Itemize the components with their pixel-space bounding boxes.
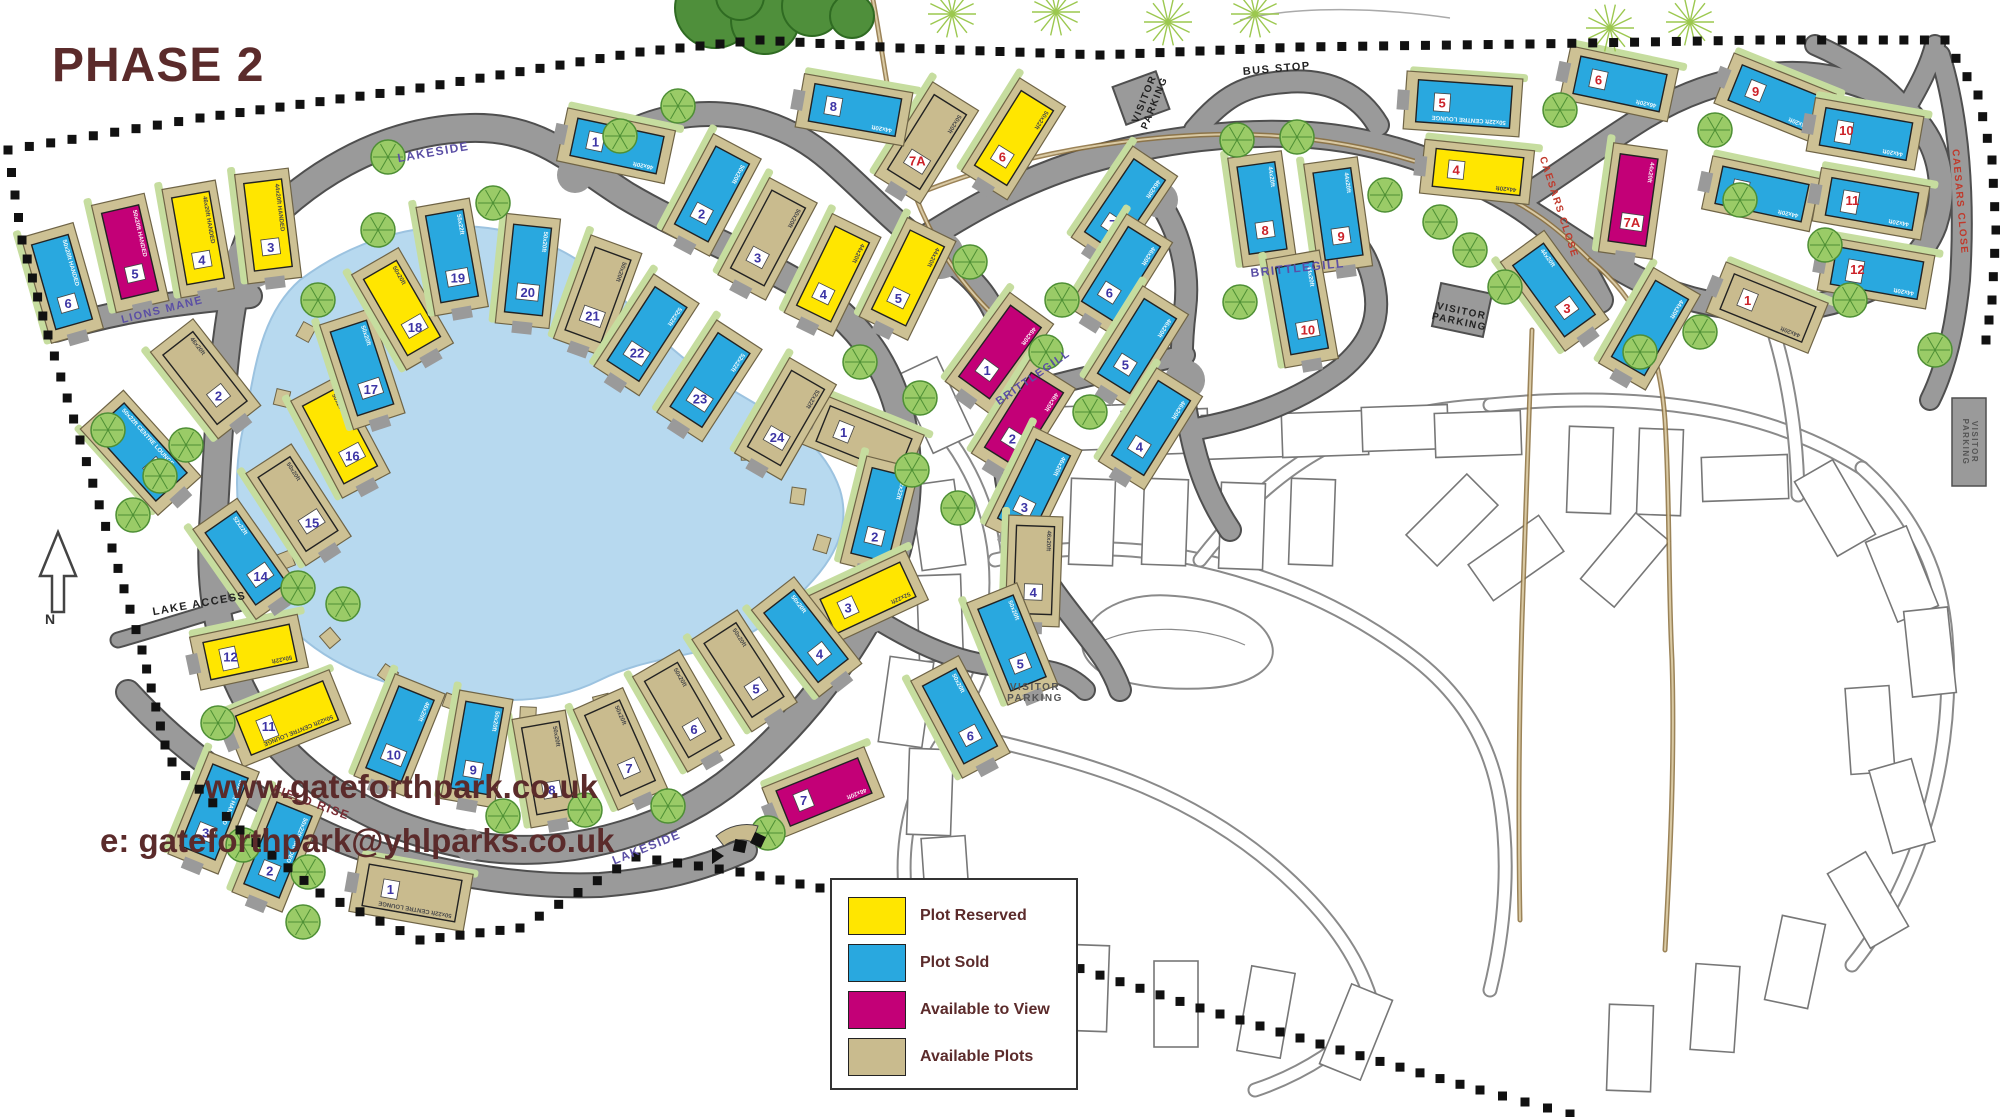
boundary-dot xyxy=(1776,36,1785,45)
boundary-dot xyxy=(28,274,37,283)
boundary-dot xyxy=(1651,37,1660,46)
plot-number: 10 xyxy=(387,747,401,762)
boundary-dot xyxy=(916,44,925,53)
boundary-dot xyxy=(816,39,825,48)
boundary-dot xyxy=(1276,1028,1285,1037)
tree-icon xyxy=(1808,228,1842,262)
north-arrow: N xyxy=(40,532,76,627)
plot-number: 16 xyxy=(345,448,359,463)
boundary-dot xyxy=(456,931,465,940)
boundary-dot xyxy=(316,889,325,898)
tree-canopy xyxy=(830,0,874,38)
boundary-dot xyxy=(1336,1046,1345,1055)
boundary-dot xyxy=(1879,36,1888,45)
boundary-dot xyxy=(516,67,525,76)
boundary-dot xyxy=(196,114,205,123)
tree-icon xyxy=(201,706,235,740)
boundary-dot xyxy=(181,771,190,780)
boundary-dot xyxy=(14,213,23,222)
plot-number: 6 xyxy=(1106,286,1113,301)
boundary-dot xyxy=(316,97,325,106)
plot-number: 23 xyxy=(693,391,707,406)
boundary-dot xyxy=(138,646,147,655)
boundary-dot xyxy=(33,293,42,302)
plot-number: 1 xyxy=(840,425,847,440)
legend-item-available: Available Plots xyxy=(848,1033,1076,1080)
boundary-dot xyxy=(50,352,59,361)
boundary-dot xyxy=(1416,1068,1425,1077)
boundary-dot xyxy=(896,44,905,53)
boundary-dot xyxy=(108,544,117,553)
boundary-dot xyxy=(376,89,385,98)
boundary-dot xyxy=(132,124,141,133)
boundary-dot xyxy=(1236,45,1245,54)
plot-number: 10 xyxy=(1301,323,1315,338)
plot-number: 21 xyxy=(585,309,599,324)
boundary-dot xyxy=(1400,41,1409,50)
boundary-dot xyxy=(736,38,745,47)
boundary-dot xyxy=(1920,36,1929,45)
plot-number: 11 xyxy=(1845,193,1859,208)
plot-number: 6 xyxy=(1595,72,1602,87)
boundary-dot xyxy=(1316,1040,1325,1049)
legend-swatch-sold xyxy=(848,944,906,982)
boundary-dot xyxy=(38,312,47,321)
future-plot-outline xyxy=(1690,964,1740,1053)
boundary-dot xyxy=(7,168,16,177)
plot-number: 4 xyxy=(1136,440,1144,455)
site-plan-page: 50x22ft CENTRE LOUNGE146x20ft244x20ft HA… xyxy=(0,0,2000,1117)
boundary-dot xyxy=(574,888,583,897)
plot-number: 7 xyxy=(625,761,632,776)
boundary-dot xyxy=(1476,1086,1485,1095)
boundary-dot xyxy=(76,436,85,445)
boundary-dot xyxy=(1296,43,1305,52)
boundary-dot xyxy=(44,331,53,340)
boundary-dot xyxy=(1136,984,1145,993)
boundary-dot xyxy=(4,146,13,155)
boundary-dot xyxy=(168,758,177,767)
boundary-dot xyxy=(1978,112,1987,121)
plot-number: 5 xyxy=(1438,95,1445,110)
boundary-dot xyxy=(336,898,345,907)
boundary-dot xyxy=(756,872,765,881)
boundary-dot xyxy=(1858,36,1867,45)
boundary-dot xyxy=(336,94,345,103)
boundary-dot xyxy=(496,70,505,79)
boundary-dot xyxy=(1756,36,1765,45)
tree-icon xyxy=(281,571,315,605)
tree-icon xyxy=(603,119,637,153)
boundary-dot xyxy=(1356,1051,1365,1060)
plot-number: 1 xyxy=(983,363,990,378)
boundary-dot xyxy=(114,564,123,573)
boundary-dot xyxy=(1546,39,1555,48)
road-label-visitor-parking: VISITORPARKING xyxy=(1007,682,1063,704)
boundary-dot xyxy=(593,876,602,885)
boundary-dot xyxy=(796,880,805,889)
boundary-dot xyxy=(1588,38,1597,47)
plot-number: 14 xyxy=(253,569,268,584)
tree-icon xyxy=(1280,120,1314,154)
future-plot-outline xyxy=(1468,515,1564,600)
plot-number: 19 xyxy=(451,271,465,286)
boundary-dot xyxy=(1526,40,1535,49)
boundary-dot xyxy=(156,722,165,731)
boundary-dot xyxy=(1989,272,1998,281)
boundary-dot xyxy=(1982,336,1991,345)
boundary-dot xyxy=(1136,49,1145,58)
boundary-dot xyxy=(195,785,204,794)
future-plot-outline xyxy=(1637,428,1684,515)
boundary-dot xyxy=(1096,971,1105,980)
road-label-visitor-parking: VISITORPARKING xyxy=(1961,419,1979,466)
boundary-dot xyxy=(1735,36,1744,45)
tree-icon xyxy=(953,245,987,279)
boundary-dot xyxy=(1256,1022,1265,1031)
boundary-dot xyxy=(101,522,110,531)
legend-label: Available Plots xyxy=(920,1048,1033,1066)
plot-number: 5 xyxy=(752,681,759,696)
future-plot-outline xyxy=(1567,426,1614,513)
boundary-dot xyxy=(1714,36,1723,45)
tree-icon xyxy=(1543,93,1577,127)
boundary-dot xyxy=(46,138,55,147)
boundary-dot xyxy=(656,46,665,55)
boundary-dot xyxy=(1056,49,1065,58)
boundary-dot xyxy=(147,684,156,693)
plot-number: 5 xyxy=(1017,656,1024,671)
legend-label: Available to View xyxy=(920,1001,1050,1019)
plot-number: 5 xyxy=(131,266,138,281)
boundary-dot xyxy=(1988,296,1997,305)
boundary-dot xyxy=(300,876,309,885)
plot-size-label: 46x20ft xyxy=(1045,530,1052,551)
boundary-dot xyxy=(174,117,183,126)
boundary-dot xyxy=(161,741,170,750)
boundary-dot xyxy=(1096,51,1105,60)
contact-email: e: gateforthpark@yhlparks.co.uk xyxy=(100,822,614,860)
tree-icon xyxy=(1368,178,1402,212)
tree-icon xyxy=(1045,283,1079,317)
boundary-dot xyxy=(376,917,385,926)
future-plot-outline xyxy=(1069,478,1116,565)
plot-number: 7 xyxy=(800,793,807,808)
tree-icon xyxy=(1698,113,1732,147)
boundary-dot xyxy=(556,61,565,70)
boundary-dot xyxy=(88,479,97,488)
boundary-dot xyxy=(1156,48,1165,57)
boundary-dot xyxy=(1379,41,1388,50)
plot-number: 12 xyxy=(1850,262,1864,277)
boundary-dot xyxy=(1316,42,1325,51)
boundary-dot xyxy=(1216,46,1225,55)
boundary-dot xyxy=(1693,37,1702,46)
boundary-dot xyxy=(1276,43,1285,52)
boundary-dot xyxy=(11,191,20,200)
boundary-dot xyxy=(596,54,605,63)
tree-icon xyxy=(143,459,177,493)
boundary-dot xyxy=(554,900,563,909)
boundary-dot xyxy=(1216,1010,1225,1019)
boundary-dot xyxy=(216,111,225,120)
boundary-dot xyxy=(1899,36,1908,45)
plot-number: 3 xyxy=(754,250,761,265)
boundary-dot xyxy=(1974,91,1983,100)
legend-label: Plot Sold xyxy=(920,954,989,972)
boundary-dot xyxy=(1609,38,1618,47)
boundary-dot xyxy=(356,907,365,916)
boundary-dot xyxy=(1436,1074,1445,1083)
boundary-dot xyxy=(1838,36,1847,45)
plot-driveway xyxy=(1396,89,1409,110)
tree-icon xyxy=(169,428,203,462)
plot-number: 2 xyxy=(871,529,878,544)
future-plot-outline xyxy=(1281,411,1368,458)
boundary-dot xyxy=(716,40,725,49)
legend-item-reserved: Plot Reserved xyxy=(848,892,1076,939)
boundary-dot xyxy=(996,47,1005,56)
boundary-dot xyxy=(856,41,865,50)
tree-icon xyxy=(1423,205,1457,239)
plot-number: 2 xyxy=(266,863,273,878)
plot-number: 4 xyxy=(816,646,824,661)
boundary-dot xyxy=(1963,72,1972,81)
plot-number: 17 xyxy=(364,382,378,397)
boundary-dot xyxy=(756,36,765,45)
tree-icon xyxy=(1453,233,1487,267)
boundary-dot xyxy=(63,394,72,403)
plot-number: 20 xyxy=(520,285,534,300)
boundary-dot xyxy=(496,926,505,935)
boundary-dot xyxy=(1236,1016,1245,1025)
future-plot-outline xyxy=(1607,1004,1654,1091)
plot-number: 24 xyxy=(770,430,785,445)
boundary-dot xyxy=(1990,202,1999,211)
boundary-dot xyxy=(1076,50,1085,59)
plot-number: 22 xyxy=(630,345,644,360)
boundary-dot xyxy=(18,236,27,245)
boundary-dot xyxy=(1797,36,1806,45)
tree-icon xyxy=(903,381,937,415)
tree-icon xyxy=(1223,285,1257,319)
plot-number: 8 xyxy=(830,99,837,114)
plot-number: 3 xyxy=(844,600,851,615)
boundary-dot xyxy=(476,74,485,83)
boundary-dot xyxy=(576,57,585,66)
boundary-dot xyxy=(1498,1092,1507,1101)
boundary-dot xyxy=(222,812,231,821)
legend-swatch-available xyxy=(848,1038,906,1076)
tree-icon xyxy=(843,345,877,379)
boundary-dot xyxy=(82,457,91,466)
boundary-dot xyxy=(120,584,129,593)
boundary-dot xyxy=(673,859,682,868)
plot-number: 3 xyxy=(1021,500,1028,515)
boundary-dot xyxy=(396,926,405,935)
tree-icon xyxy=(1220,123,1254,157)
boundary-dot xyxy=(396,86,405,95)
tree-icon xyxy=(895,453,929,487)
boundary-dot xyxy=(25,142,34,151)
plot-number: 3 xyxy=(267,240,274,255)
boundary-dot xyxy=(1941,36,1950,45)
plot-number: 5 xyxy=(1122,358,1129,373)
plot-number: 4 xyxy=(198,253,206,268)
future-plot-outline xyxy=(1406,474,1498,566)
plot-driveway xyxy=(264,275,285,289)
boundary-dot xyxy=(416,936,425,945)
sketch-line xyxy=(1240,10,1450,20)
boundary-dot xyxy=(1983,134,1992,143)
legend-item-sold: Plot Sold xyxy=(848,939,1076,986)
tree-icon xyxy=(941,491,975,525)
plot-number: 6 xyxy=(64,296,71,311)
boundary-dot xyxy=(516,924,525,933)
plot-number: 7A xyxy=(909,154,926,169)
plot-number: 2 xyxy=(698,206,705,221)
plot-number: 6 xyxy=(690,722,697,737)
boundary-dot xyxy=(1016,48,1025,57)
plot-number: 1 xyxy=(592,134,599,149)
boundary-dot xyxy=(476,928,485,937)
boundary-dot xyxy=(142,665,151,674)
plot-number: 4 xyxy=(820,287,828,302)
boundary-dot xyxy=(1116,977,1125,986)
future-plot-outline xyxy=(1869,759,1935,854)
future-plot-outline xyxy=(1434,411,1521,458)
boundary-dot xyxy=(1992,226,2000,235)
boundary-dot xyxy=(1256,44,1265,53)
website-url: www.gateforthpark.co.uk xyxy=(205,768,598,806)
plot-number: 4 xyxy=(1453,163,1461,178)
future-plot-outline xyxy=(1701,455,1788,502)
boundary-dot xyxy=(284,863,293,872)
boundary-dot xyxy=(636,48,645,57)
boundary-dot xyxy=(696,42,705,51)
legend-item-view: Available to View xyxy=(848,986,1076,1033)
tree-icon xyxy=(326,587,360,621)
boundary-dot xyxy=(536,64,545,73)
plot-number: 11 xyxy=(262,719,276,734)
boundary-dot xyxy=(1176,997,1185,1006)
boundary-dot xyxy=(616,51,625,60)
boundary-dot xyxy=(436,80,445,89)
plot-lakeside-ring-20[interactable]: 50x20ft20 xyxy=(487,205,561,337)
starburst-tree-icon xyxy=(1231,0,1279,37)
boundary-dot xyxy=(153,121,162,130)
starburst-tree-icon xyxy=(1032,0,1080,35)
boundary-dot xyxy=(1463,40,1472,49)
boundary-dot xyxy=(694,862,703,871)
plot-number: 5 xyxy=(895,291,902,306)
plot-number: 6 xyxy=(999,150,1006,165)
plot-number: 1 xyxy=(1744,293,1751,308)
boundary-dot xyxy=(256,105,265,114)
tree-icon xyxy=(476,186,510,220)
boundary-dot xyxy=(1567,39,1576,48)
boundary-dot xyxy=(976,46,985,55)
boundary-dot xyxy=(1116,50,1125,59)
boundary-dot xyxy=(1156,990,1165,999)
boundary-dot xyxy=(1442,41,1451,50)
boundary-dot xyxy=(1337,42,1346,51)
future-plot-outline xyxy=(1237,966,1295,1058)
boundary-dot xyxy=(68,135,77,144)
tree-icon xyxy=(116,498,150,532)
boundary-dot xyxy=(132,625,141,634)
boundary-dot xyxy=(89,131,98,140)
plot-number: 8 xyxy=(1261,223,1268,238)
boundary-dot xyxy=(1543,1104,1552,1113)
boundary-dot xyxy=(1176,47,1185,56)
tree-icon xyxy=(1723,183,1757,217)
page-title: PHASE 2 xyxy=(52,38,264,93)
boundary-dot xyxy=(1421,41,1430,50)
starburst-tree-icon xyxy=(928,0,976,37)
boundary-dot xyxy=(736,868,745,877)
boundary-dot xyxy=(776,876,785,885)
future-plot-outline xyxy=(1289,478,1336,565)
tree-icon xyxy=(661,89,695,123)
boundary-dot xyxy=(715,865,724,874)
boundary-dot xyxy=(1989,179,1998,188)
plot-number: 3 xyxy=(1563,301,1570,316)
tree-icon xyxy=(361,213,395,247)
boundary-dot xyxy=(1630,38,1639,47)
north-label: N xyxy=(45,611,55,627)
plot-number: 9 xyxy=(1752,84,1759,99)
tree-icon xyxy=(1918,333,1952,367)
boundary-dot xyxy=(1296,1034,1305,1043)
plot-caesars-close-4[interactable]: 44x20ft4 xyxy=(1412,131,1544,205)
plot-number: 1 xyxy=(387,882,394,897)
tree-icon xyxy=(1488,270,1522,304)
boundary-dot xyxy=(936,45,945,54)
boundary-dot xyxy=(776,37,785,46)
boundary-dot xyxy=(69,415,78,424)
boundary-dot xyxy=(1988,156,1997,165)
boundary-dot xyxy=(816,884,825,893)
boundary-dot xyxy=(1672,37,1681,46)
boundary-dot xyxy=(356,92,365,101)
future-plot-outline xyxy=(1765,915,1826,1008)
boundary-dot xyxy=(535,912,544,921)
boundary-dot xyxy=(1376,1057,1385,1066)
boundary-dot xyxy=(1521,1098,1530,1107)
future-plot-outline xyxy=(1581,513,1670,607)
tree-icon xyxy=(301,283,335,317)
plot-number: 2 xyxy=(215,388,222,403)
boundary-dot xyxy=(436,933,445,942)
boundary-dot xyxy=(1952,54,1961,63)
tree-icon xyxy=(91,413,125,447)
plot-caesars-close-5[interactable]: 50x22ft CENTRE LOUNGE5 xyxy=(1395,65,1528,137)
boundary-dot xyxy=(1484,40,1493,49)
boundary-dot xyxy=(1566,1110,1575,1117)
legend-swatch-view xyxy=(848,991,906,1029)
boundary-dot xyxy=(236,108,245,117)
plot-caesars-close-8[interactable]: 44x20ft8 xyxy=(1694,147,1830,233)
plot-driveway xyxy=(511,321,532,335)
boundary-dot xyxy=(1456,1080,1465,1089)
legend: Plot ReservedPlot SoldAvailable to ViewA… xyxy=(830,878,1078,1090)
boundary-dot xyxy=(956,46,965,55)
plot-number: 6 xyxy=(967,728,974,743)
boundary-dot xyxy=(95,500,104,509)
boundary-dot xyxy=(126,605,135,614)
boundary-dot xyxy=(456,77,465,86)
